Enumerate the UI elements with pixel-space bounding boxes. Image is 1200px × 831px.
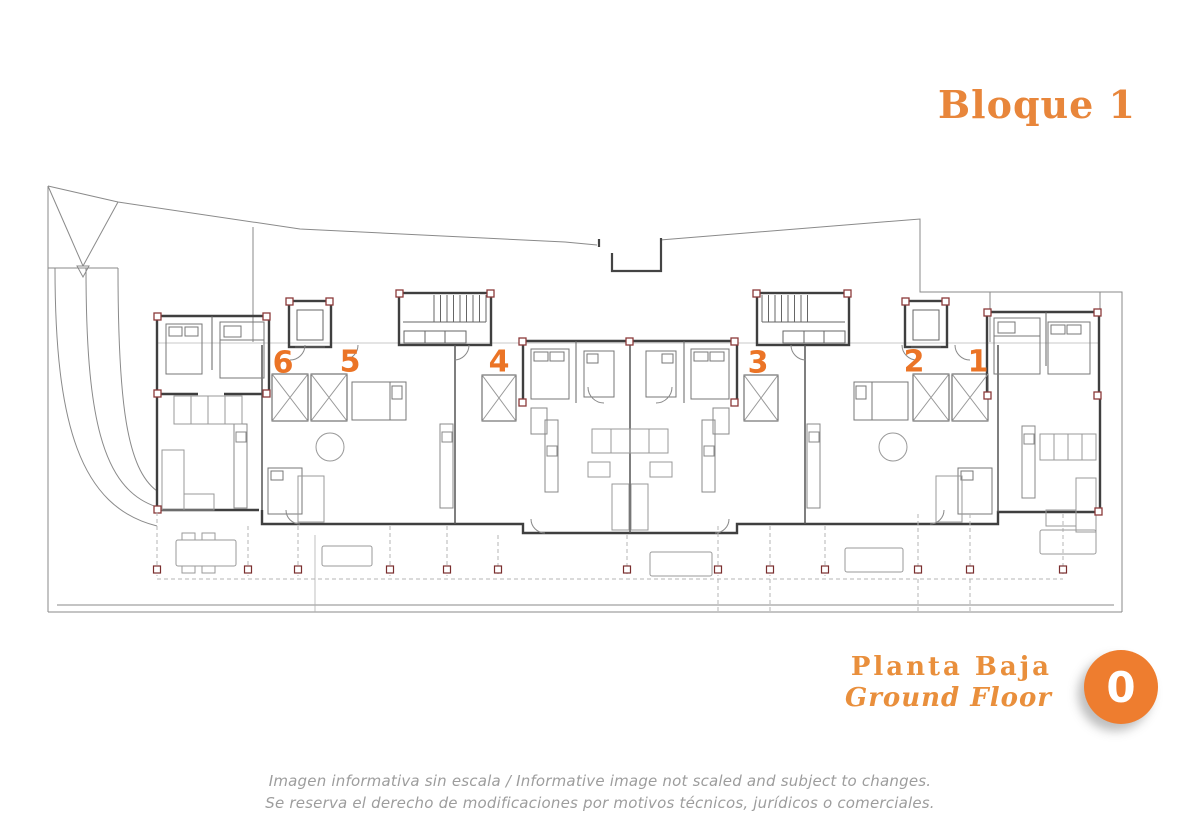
- unit-number-6: 6: [273, 346, 294, 381]
- unit-number-3: 3: [748, 346, 769, 381]
- unit-number-1: 1: [968, 345, 989, 380]
- stairs-left: [403, 295, 486, 343]
- disclaimer: Imagen informativa sin escala / Informat…: [0, 771, 1200, 815]
- disclaimer-line-1: Imagen informativa sin escala / Informat…: [0, 771, 1200, 793]
- page: Bloque 1: [0, 0, 1200, 831]
- unit-number-2: 2: [904, 345, 925, 380]
- unit-number-5: 5: [340, 345, 361, 380]
- elevator-right: [911, 310, 941, 347]
- site-boundary: [48, 186, 1122, 612]
- terrace-columns: [154, 566, 1067, 573]
- floor-badge-number: 0: [1106, 663, 1135, 712]
- kitchens: [234, 408, 1035, 508]
- terrace-lines: [157, 512, 1063, 612]
- floor-label-es: Planta Baja: [845, 652, 1052, 683]
- doors: [286, 345, 970, 533]
- pillars: [154, 290, 1102, 515]
- disclaimer-line-2: Se reserva el derecho de modificaciones …: [0, 793, 1200, 815]
- terrace-furniture: [176, 530, 1096, 576]
- unit-number-4: 4: [489, 345, 510, 380]
- elevator-left: [295, 310, 325, 347]
- retaining-wall-notch: [599, 238, 661, 271]
- floor-badge: 0: [1084, 650, 1158, 724]
- floor-label-en: Ground Floor: [845, 683, 1052, 714]
- floor-label: Planta Baja Ground Floor: [845, 652, 1052, 714]
- stairs-right: [762, 295, 845, 343]
